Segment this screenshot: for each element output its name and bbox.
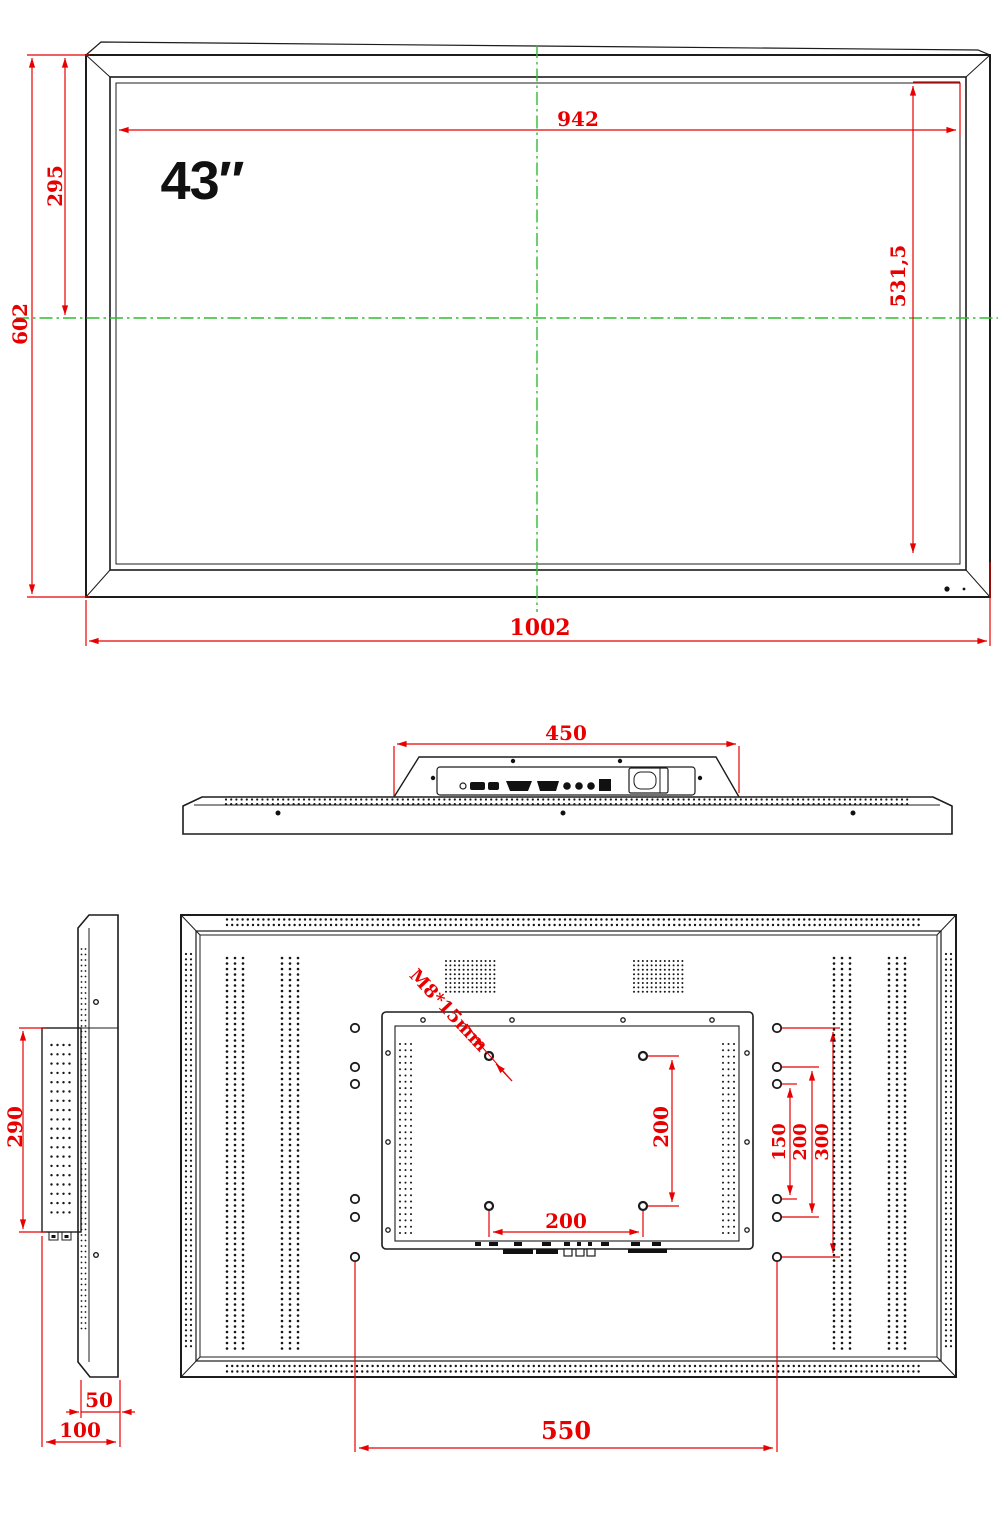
top-view-outline — [183, 757, 952, 834]
drawing-canvas — [0, 0, 1000, 1529]
top-view-ports — [460, 779, 611, 791]
vga-port-icon — [537, 781, 559, 791]
back-view-vesa-holes — [485, 1052, 647, 1210]
mini-port-icon — [488, 782, 499, 790]
back-view-dimension-lines — [355, 1024, 840, 1452]
side-view-outline — [42, 915, 118, 1377]
hdmi-port-icon — [470, 782, 485, 790]
dvi-port-icon — [506, 781, 532, 791]
dim-overall-width: 1002 — [509, 617, 570, 639]
front-led-ir-dots — [944, 586, 965, 591]
dim-span-300: 300 — [814, 1123, 832, 1161]
dim-bottom-span: 550 — [541, 1419, 591, 1443]
front-dimension-lines — [27, 55, 990, 646]
dim-span-200: 200 — [792, 1123, 810, 1161]
dim-vesa-width: 200 — [545, 1211, 587, 1231]
dim-span-150: 150 — [771, 1123, 789, 1161]
screen-size-label: 43″ — [161, 150, 244, 212]
side-view-feet-marks — [52, 1235, 69, 1238]
perforation-dots — [50, 798, 952, 1372]
audio-port-icon — [460, 783, 466, 789]
dim-mount-width: 450 — [545, 723, 587, 743]
jack-port-icon — [575, 782, 583, 790]
dim-bracket-height: 290 — [5, 1106, 25, 1148]
usb-port-icon — [599, 779, 611, 791]
back-view-bottom-usb — [564, 1249, 595, 1256]
dim-total-depth: 100 — [59, 1420, 101, 1440]
jack-port-icon — [563, 782, 571, 790]
dim-top-to-center: 295 — [45, 165, 65, 207]
dim-display-height: 531,5 — [888, 245, 908, 308]
side-view-screws — [94, 1000, 99, 1258]
dim-vesa-height: 200 — [651, 1106, 671, 1148]
jack-port-icon — [587, 782, 595, 790]
dim-panel-depth: 50 — [85, 1390, 113, 1410]
front-view-outline — [86, 42, 990, 597]
back-view-rim-screws — [386, 1018, 749, 1232]
dim-display-width: 942 — [557, 109, 599, 129]
dim-overall-height: 602 — [10, 303, 30, 345]
dimension-drawing-page: 43″ 942 531,5 295 602 1002 450 290 50 10… — [0, 0, 1000, 1529]
